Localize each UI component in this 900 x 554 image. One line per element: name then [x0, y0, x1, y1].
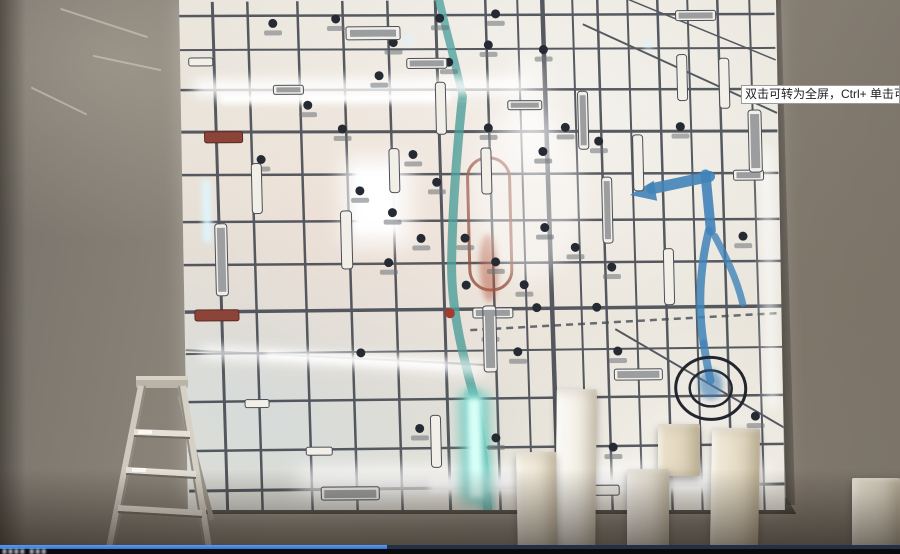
- wall-shadow: [0, 0, 26, 549]
- wall-scratch: [31, 87, 88, 116]
- railway-line: [470, 313, 782, 330]
- wall-scratch: [93, 55, 162, 72]
- wall-scratch: [60, 8, 148, 38]
- video-player: 双击可转为全屏，Ctrl+ 单击可转为 ▮▮▮▮ ▮▮▮: [0, 0, 900, 554]
- watermark-text: ▮▮▮▮ ▮▮▮: [2, 549, 132, 554]
- video-frame[interactable]: [0, 0, 900, 549]
- floor-shadow: [0, 469, 900, 549]
- video-control-bar: ▮▮▮▮ ▮▮▮: [0, 549, 900, 554]
- fullscreen-tooltip: 双击可转为全屏，Ctrl+ 单击可转为: [741, 85, 900, 104]
